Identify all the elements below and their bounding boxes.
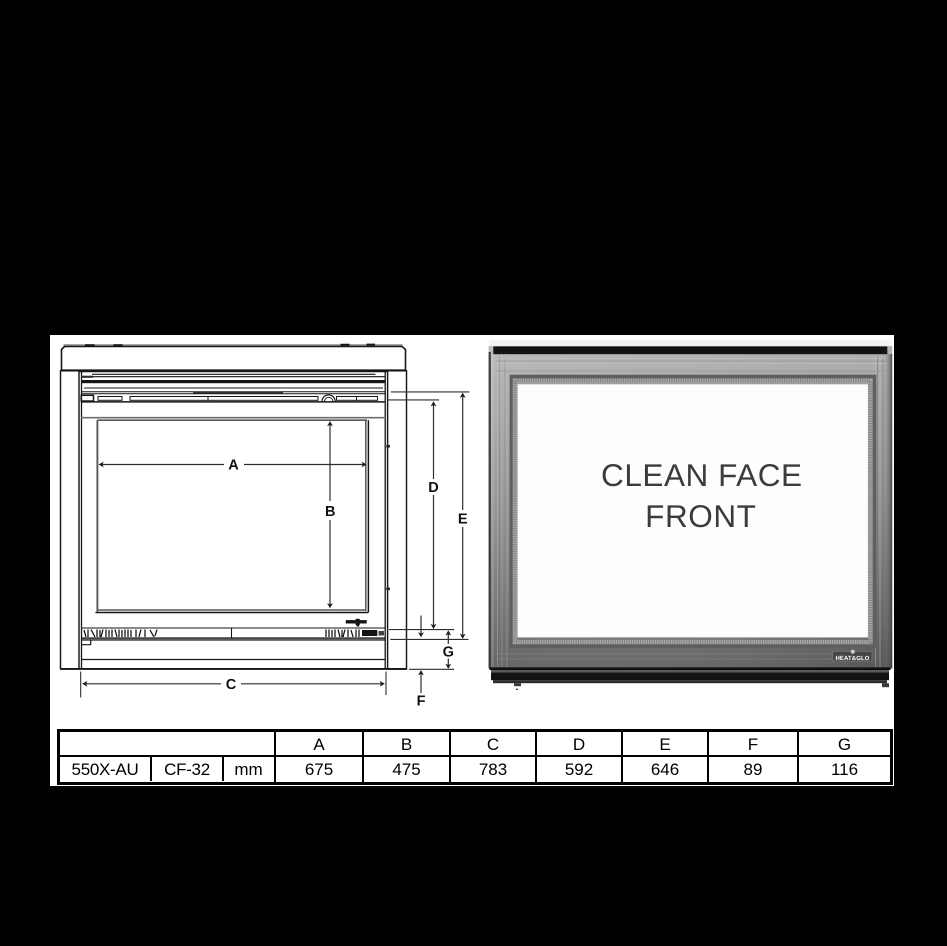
svg-text:C: C [226,677,237,693]
svg-text:D: D [428,480,438,496]
svg-text:E: E [458,512,468,528]
svg-text:B: B [325,504,335,520]
svg-text:FRONT: FRONT [645,498,756,534]
svg-text:F: F [417,694,426,710]
svg-text:G: G [443,645,454,661]
svg-text:CLEAN FACE: CLEAN FACE [601,457,803,493]
svg-text:A: A [228,458,239,474]
svg-text:HEAT&GLO: HEAT&GLO [835,655,869,662]
